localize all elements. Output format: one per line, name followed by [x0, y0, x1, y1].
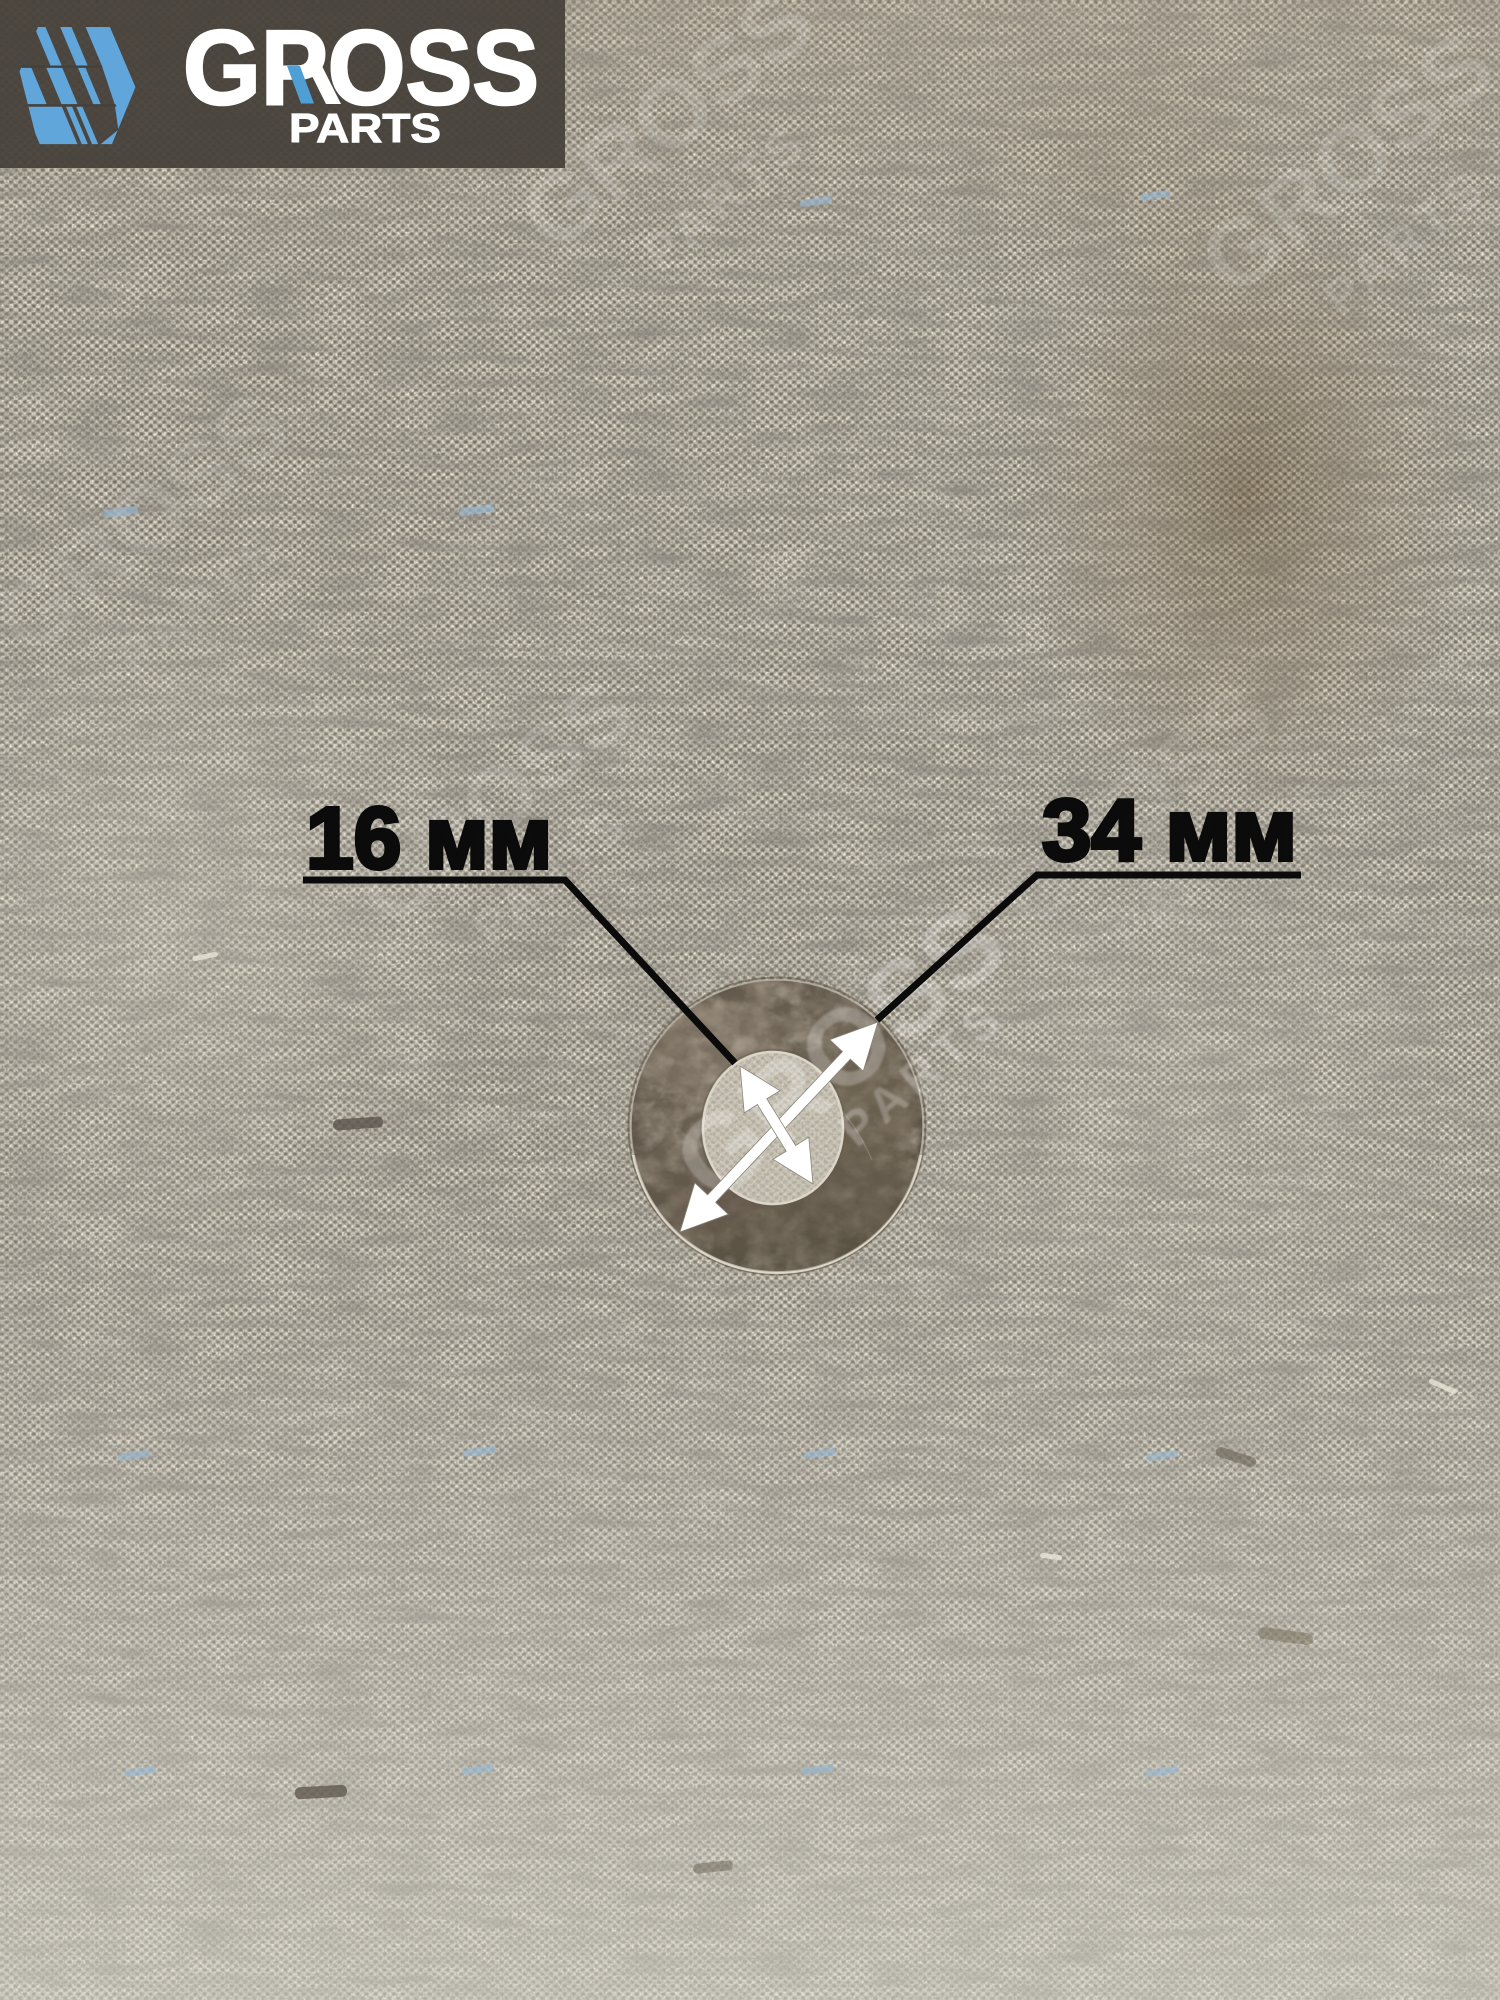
svg-text:34 мм: 34 мм [1042, 782, 1297, 879]
svg-text:PARTS: PARTS [289, 105, 441, 151]
svg-text:16 мм: 16 мм [306, 790, 552, 887]
